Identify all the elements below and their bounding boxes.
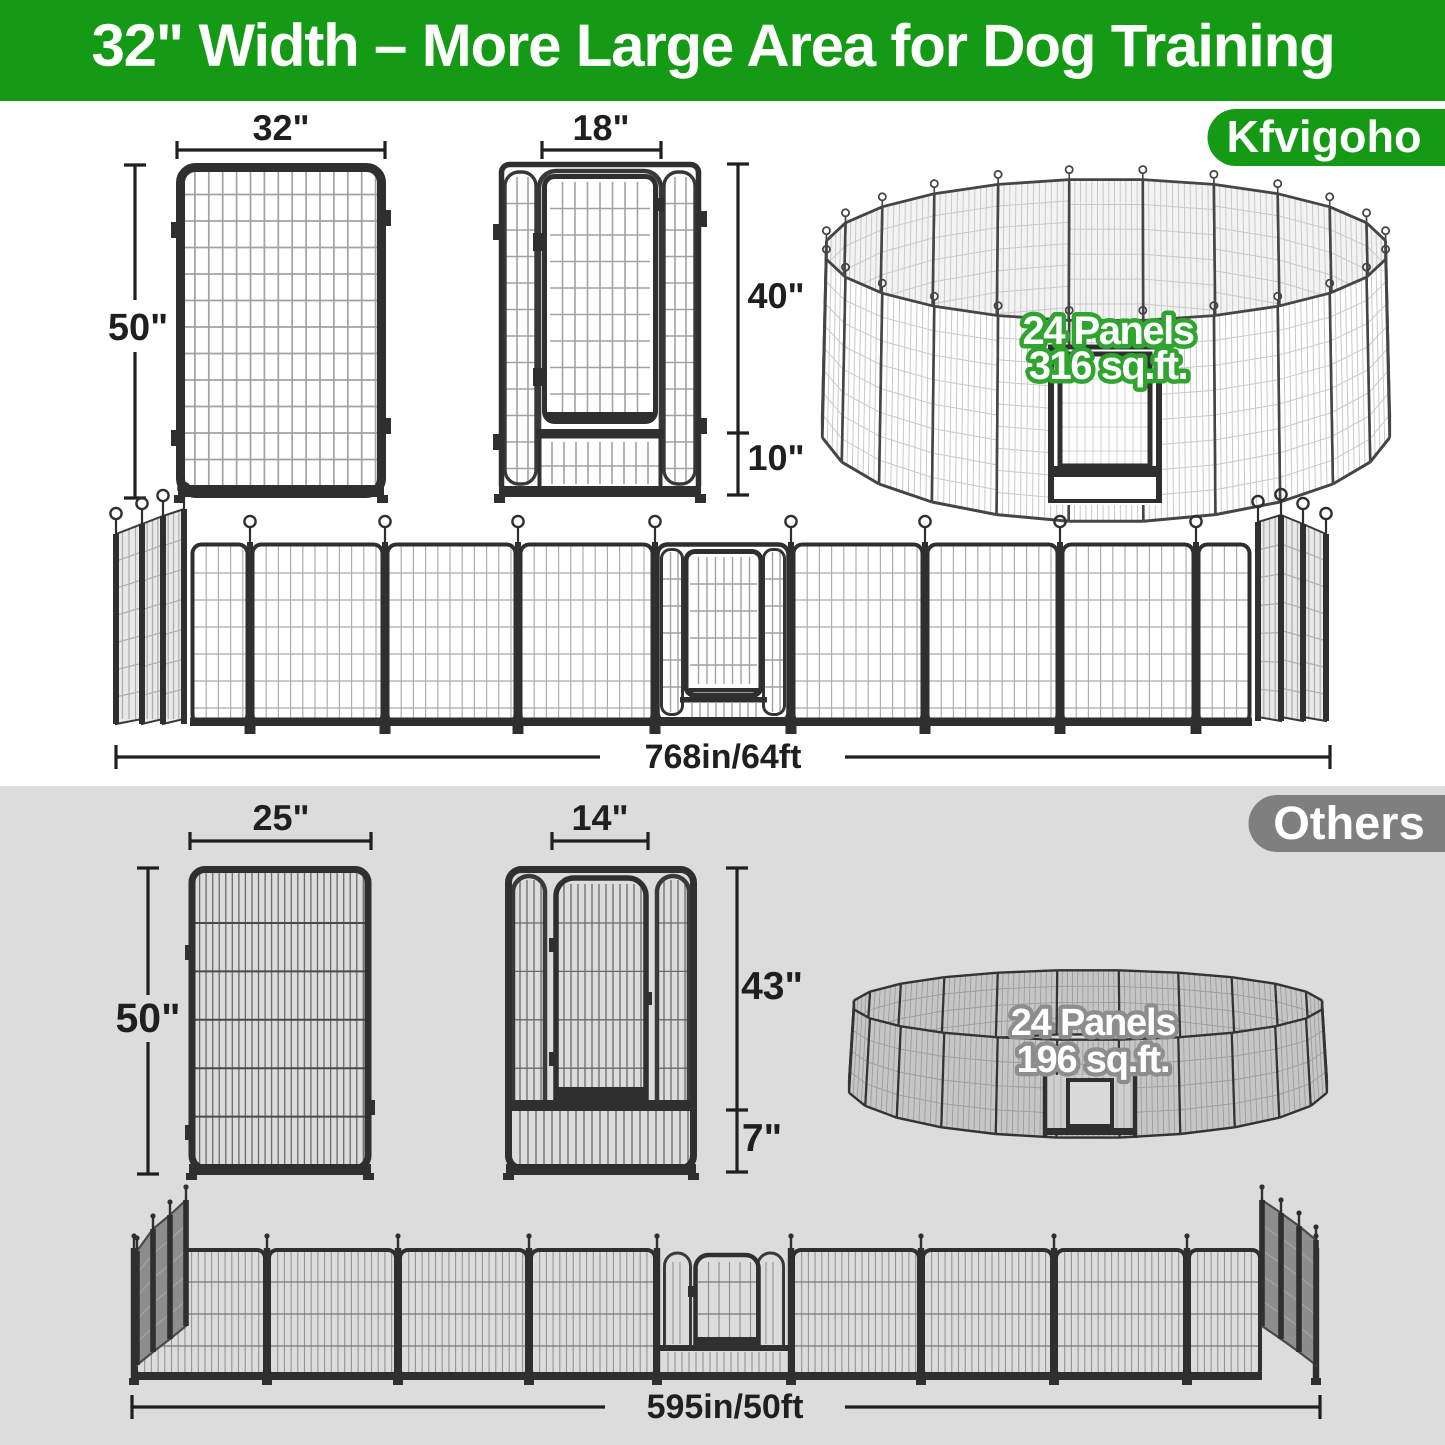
svg-text:14": 14" (571, 797, 628, 838)
svg-text:18": 18" (572, 107, 629, 148)
svg-text:50": 50" (108, 307, 168, 349)
svg-text:7": 7" (742, 1117, 782, 1160)
svg-text:32": 32" (252, 107, 309, 148)
svg-text:595in/50ft: 595in/50ft (647, 1388, 804, 1426)
svg-text:Kfvigoho: Kfvigoho (1227, 111, 1422, 162)
svg-text:196 sq.ft.: 196 sq.ft. (1017, 1039, 1170, 1081)
svg-text:43": 43" (741, 965, 803, 1008)
svg-text:768in/64ft: 768in/64ft (645, 738, 802, 776)
svg-text:40": 40" (747, 275, 804, 316)
svg-text:25": 25" (252, 797, 309, 838)
svg-text:50": 50" (115, 995, 180, 1041)
svg-text:24 Panels: 24 Panels (1011, 1002, 1176, 1044)
svg-text:316 sq.ft.: 316 sq.ft. (1029, 344, 1187, 388)
svg-text:32" Width – More Large Area fo: 32" Width – More Large Area for Dog Trai… (91, 12, 1334, 80)
svg-text:10": 10" (747, 437, 804, 478)
svg-text:Others: Others (1273, 796, 1425, 849)
